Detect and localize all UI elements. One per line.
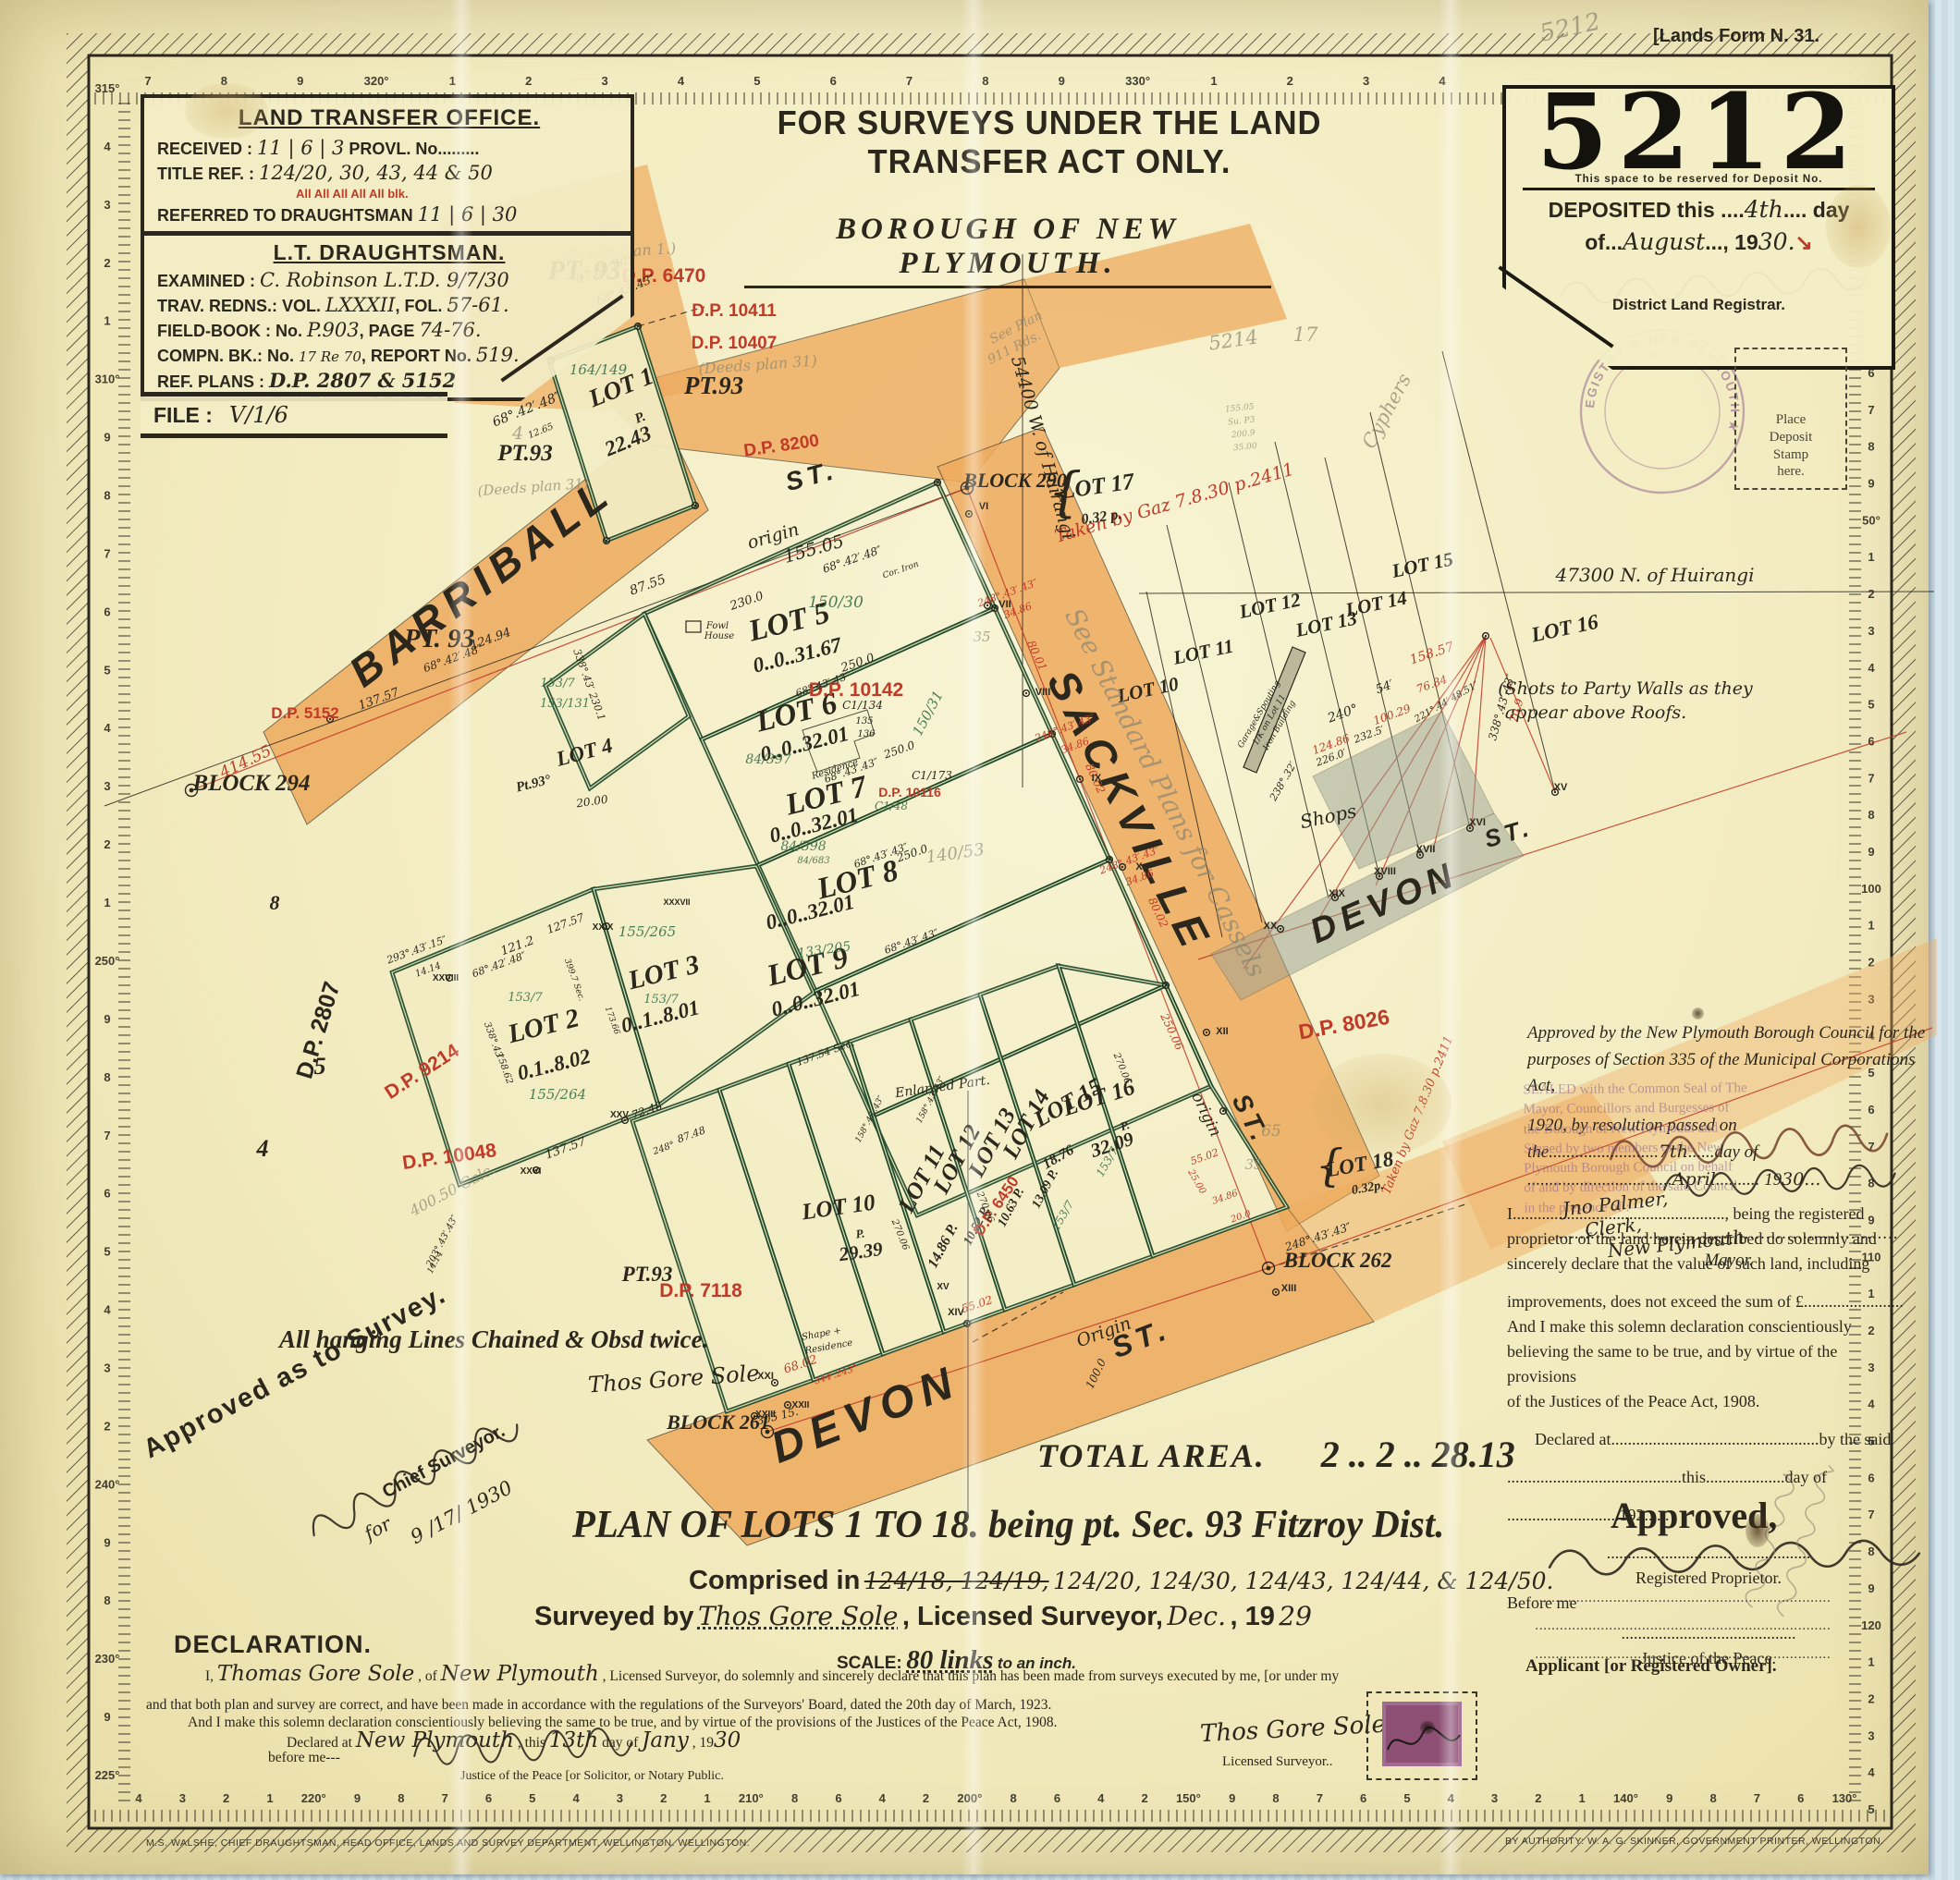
map-label: LOT 14 xyxy=(1342,586,1409,621)
map-label: (Shots to Party Walls as they xyxy=(1498,678,1753,699)
ruler-number: 8 xyxy=(104,1070,110,1084)
map-label: XXIX xyxy=(593,922,614,933)
map-label: 150/31 xyxy=(909,688,947,739)
map-label: D.P. 7118 xyxy=(659,1280,742,1301)
map-label: 68°.43′.43″ xyxy=(883,926,941,956)
ruler-number: 9 xyxy=(104,1535,110,1549)
ruler-number: 7 xyxy=(1317,1791,1323,1805)
ruler-number: 6 xyxy=(104,1187,110,1201)
ruler-number: 2 xyxy=(1535,1791,1541,1805)
ruler-number: 7 xyxy=(104,1129,110,1142)
map-label: 55.02 xyxy=(960,1293,994,1315)
lto-examined: EXAMINED : C. Robinson L.T.D. 9/7/30 xyxy=(157,269,621,291)
map-label: 17 xyxy=(1293,324,1318,346)
map-label: P. xyxy=(855,1226,866,1240)
fowl-house-icon xyxy=(686,621,701,632)
ruler-number: 130° xyxy=(1832,1791,1857,1805)
ruler-number: 4 xyxy=(572,1791,580,1805)
map-label: XII xyxy=(1216,1026,1228,1037)
ruler-number: 8 xyxy=(791,1791,798,1805)
map-label: LOT 3 xyxy=(624,949,703,995)
map-label: 135 xyxy=(855,716,873,726)
map-label: VIII xyxy=(1035,687,1051,698)
map-label: LOT 4 xyxy=(553,734,615,771)
map-label: C1/134 xyxy=(842,699,883,712)
ruler-number: 4 xyxy=(104,140,111,153)
ruler-number: 9 xyxy=(1059,74,1065,88)
ruler-number: 5 xyxy=(1868,1802,1874,1816)
map-label: 250.0 xyxy=(881,739,916,762)
survey-station-dot xyxy=(1280,928,1281,930)
lands-form-number: [Lands Form N. 31. xyxy=(1653,26,1819,47)
map-label: C1/173 xyxy=(912,769,952,782)
lto-title-ref-marks: All All All All All blk. xyxy=(296,187,621,201)
lto-referred: REFERRED TO DRAUGHTSMAN 11 | 6 | 30 xyxy=(157,203,621,226)
map-label: 200.9 xyxy=(1230,429,1256,441)
ruler-number: 3 xyxy=(104,198,110,212)
map-label: 136 xyxy=(857,729,876,739)
map-label: 155/265 xyxy=(619,923,676,940)
map-label: 153/131 xyxy=(540,697,590,711)
ruler-number: 4 xyxy=(104,721,111,735)
map-label: LOT 10 xyxy=(800,1190,877,1226)
map-label: 5 xyxy=(314,1053,326,1080)
map-label: 55.02 xyxy=(1189,1146,1220,1167)
lto-draughtsman-title: L.T. DRAUGHTSMAN. xyxy=(157,240,621,265)
licensed-surveyor-caption: Licensed Surveyor.. xyxy=(1222,1754,1333,1770)
map-label: 4 xyxy=(511,423,523,444)
map-label: LOT 15 xyxy=(1389,547,1455,582)
ruler-number: 3 xyxy=(1868,1728,1874,1742)
ruler-number: 7 xyxy=(144,74,151,88)
ruler-number: 2 xyxy=(525,74,532,88)
map-label: X xyxy=(1135,861,1143,873)
map-label: 84/397 xyxy=(745,752,790,767)
survey-station-dot xyxy=(774,1382,776,1384)
jp-solicitor-caption: Justice of the Peace [or Solicitor, or N… xyxy=(460,1769,724,1784)
surveyed-by-row: Surveyed by Thos Gore Sole , Licensed Su… xyxy=(534,1601,1312,1632)
ruler-number: 5 xyxy=(1868,698,1874,712)
map-label: 127.57 xyxy=(545,910,587,936)
ruler-number: 210° xyxy=(739,1791,764,1805)
map-label: PT.93 xyxy=(496,441,553,466)
map-label: LOT 16 xyxy=(1528,610,1601,647)
ruler-number: 200° xyxy=(957,1791,982,1805)
map-label: XIX xyxy=(1329,888,1345,899)
map-label: 35 xyxy=(973,629,990,645)
place-deposit-stamp-box: PlaceDeposit Stamphere. xyxy=(1734,348,1847,490)
ruler-number: 9 xyxy=(104,431,110,445)
ruler-number: 4 xyxy=(104,1303,111,1317)
map-label: 150/30 xyxy=(808,593,864,612)
ruler-number: 1 xyxy=(1579,1791,1586,1805)
map-label: XXIII xyxy=(755,1410,776,1420)
map-label: 158.57 xyxy=(1408,640,1456,667)
before-me-line: before me--- xyxy=(268,1750,340,1766)
lto-title-ref: TITLE REF. : 124/20, 30, 43, 44 & 50 xyxy=(157,162,621,184)
map-label: 338°.43′ 230.1 xyxy=(570,647,607,722)
map-label: 76.84 xyxy=(1415,673,1449,696)
ruler-number: 7 xyxy=(1868,403,1874,417)
ruler-number: 9 xyxy=(104,1012,110,1026)
map-label: XVIII xyxy=(1374,866,1396,877)
map-label: 155.05 xyxy=(1225,402,1256,414)
lot-boundary-inner xyxy=(815,860,1166,1117)
ruler-number: 9 xyxy=(1229,1791,1235,1805)
map-label: 87.48 xyxy=(676,1124,707,1145)
ruler-number: 8 xyxy=(1272,1791,1279,1805)
lto-fieldbook: FIELD-BOOK : No. P.903, PAGE 74-76. xyxy=(157,319,621,341)
ruler-number: 4 xyxy=(1439,74,1446,88)
survey-station-dot xyxy=(966,1323,968,1325)
map-label: 230.0 xyxy=(728,590,766,615)
survey-station-dot xyxy=(694,505,696,507)
ruler-number: 4 xyxy=(1448,1791,1455,1805)
map-label: 158.62 xyxy=(494,1052,514,1086)
ruler-ticks-bottom xyxy=(89,1810,1892,1822)
land-transfer-office-box: LAND TRANSFER OFFICE. RECEIVED : 11 | 6 … xyxy=(141,94,634,401)
deposit-number: 5212 xyxy=(1506,81,1892,185)
survey-station-dot xyxy=(1165,984,1167,986)
ruler-number: 2 xyxy=(1868,587,1874,601)
file-strip: FILE :V/1/6 xyxy=(141,392,447,438)
ruler-number: 8 xyxy=(1709,1791,1716,1805)
ruler-number: 9 xyxy=(104,1710,110,1724)
map-label: 12.65 xyxy=(527,421,556,441)
survey-station-dot xyxy=(1485,635,1487,637)
form-heading: FOR SURVEYS UNDER THE LAND TRANSFER ACT … xyxy=(694,104,1404,181)
map-label: BLOCK 261 xyxy=(666,1410,770,1434)
declaration-line-2: and that both plan and survey are correc… xyxy=(146,1697,1051,1714)
map-label: 164/149 xyxy=(570,361,628,378)
ruler-number: 315° xyxy=(95,81,120,95)
map-label: 137.57 xyxy=(544,1135,589,1163)
map-label: House xyxy=(704,631,734,641)
printer-credit-left: M.S. WALSHE, CHIEF DRAUGHTSMAN, HEAD OFF… xyxy=(146,1837,750,1849)
page: { "colors":{"ink":"#2b271d","red":"#c03a… xyxy=(0,0,1960,1880)
ruler-number: 150° xyxy=(1176,1791,1201,1805)
ruler-number: 3 xyxy=(104,779,110,793)
ruler-number: 3 xyxy=(1868,624,1874,638)
ruler-number: 4 xyxy=(879,1791,887,1805)
survey-station-dot xyxy=(1275,1291,1277,1293)
declaration-line-1: I, Thomas Gore Sole , of New Plymouth , … xyxy=(205,1662,1339,1686)
declaration-line-4: Declared at New Plymouth , this 13th day… xyxy=(287,1728,741,1752)
ruler-number: 1 xyxy=(266,1791,273,1805)
map-label: 140/53 xyxy=(925,840,986,868)
map-label: C1/48 xyxy=(875,800,908,812)
ruler-number: 1 xyxy=(1868,550,1874,564)
ruler-number: 3 xyxy=(1363,74,1369,88)
survey-station-dot xyxy=(1267,1266,1271,1271)
ruler-number: 100 xyxy=(1861,882,1881,896)
map-label: Taken by Gaz 7.8.30 p.2411 xyxy=(1052,459,1296,547)
ruler-number: 5 xyxy=(104,663,110,677)
map-label: 47300 N. of Huirangi xyxy=(1555,564,1755,586)
ruler-number: 3 xyxy=(1491,1791,1498,1805)
map-label: Cor. Iron xyxy=(882,560,921,581)
ruler-number: 140° xyxy=(1613,1791,1638,1805)
applicant-caption: Applicant [or Registered Owner]. xyxy=(1525,1656,1777,1677)
map-label: Cyphers xyxy=(1358,370,1416,452)
ruler-number: 6 xyxy=(1054,1791,1060,1805)
ruler-number: 2 xyxy=(923,1791,929,1805)
map-label: BLOCK 262 xyxy=(1283,1249,1392,1272)
survey-station-dot xyxy=(606,540,607,542)
ruler-number: 4 xyxy=(135,1791,142,1805)
revenue-stamp-box xyxy=(1366,1691,1477,1780)
ruler-number: 3 xyxy=(602,74,608,88)
survey-line xyxy=(1139,592,1934,593)
deposit-box: 5212 This space to be reserved for Depos… xyxy=(1502,85,1895,370)
lto-divider xyxy=(144,231,631,236)
revenue-stamp xyxy=(1382,1702,1462,1766)
map-label: XVII xyxy=(1416,844,1436,855)
map-label: 72.48 xyxy=(630,1099,664,1122)
ruler-number: 2 xyxy=(1141,1791,1147,1805)
ruler-number: 8 xyxy=(1868,440,1874,454)
ruler-number: 9 xyxy=(1868,845,1874,859)
map-label: 65 xyxy=(1261,1122,1281,1141)
ruler-number: 9 xyxy=(354,1791,361,1805)
approved-caption: Approved, xyxy=(1611,1494,1777,1537)
map-label: 35 xyxy=(1244,1156,1262,1173)
survey-station-dot xyxy=(1222,1110,1224,1112)
ruler-number: 6 xyxy=(485,1791,492,1805)
map-label: VII xyxy=(998,599,1011,610)
map-label: 399.7 Sec. xyxy=(562,958,586,1003)
map-label: 238°.32′ xyxy=(1267,759,1299,803)
map-label: VI xyxy=(979,501,988,512)
ruler-number: 1 xyxy=(1210,74,1217,88)
round-stamp-inner xyxy=(1605,354,1720,469)
map-label: 0.1..8.02 xyxy=(515,1044,593,1085)
ruler-number: 2 xyxy=(104,1419,110,1433)
map-label: XXII xyxy=(792,1400,810,1410)
ruler-number: 5 xyxy=(529,1791,535,1805)
map-label: 203°.43′.43″ xyxy=(424,1214,460,1270)
borough-heading: BOROUGH OF NEW PLYMOUTH. xyxy=(744,213,1271,288)
map-label: 13.09 P. xyxy=(1030,1167,1061,1211)
map-label: Su. P3 xyxy=(1228,415,1256,427)
ruler-number: 3 xyxy=(617,1791,623,1805)
ruler-number: 8 xyxy=(104,1593,110,1607)
map-label: D.P. 10407 xyxy=(692,334,778,353)
map-label: 153/7 xyxy=(643,993,679,1007)
map-label: 34.86 xyxy=(1211,1188,1240,1206)
survey-station-dot xyxy=(1025,692,1027,694)
ruler-number: 1 xyxy=(104,896,110,909)
ruler-number: 9 xyxy=(1666,1791,1672,1805)
ruler-number: 4 xyxy=(678,74,685,88)
map-label: 29.39 xyxy=(837,1238,885,1266)
ruler-number: 225° xyxy=(95,1768,120,1782)
ruler-number: 5 xyxy=(753,74,760,88)
map-label: 4 xyxy=(256,1135,269,1162)
ruler-number: 7 xyxy=(1754,1791,1760,1805)
map-label: D.P. 10411 xyxy=(692,301,777,321)
ruler-number: 50° xyxy=(1862,513,1880,527)
map-label: 248° xyxy=(651,1140,676,1157)
map-label: 0..0..32.01 xyxy=(764,890,857,934)
ruler-number: 2 xyxy=(223,1791,229,1805)
map-label: 68°.42′.48″ xyxy=(471,949,529,980)
ruler-number: 310° xyxy=(95,372,120,386)
map-label: D.P. 5152 xyxy=(271,704,338,722)
ruler-number: 3 xyxy=(104,1361,110,1374)
ruler-number: 8 xyxy=(982,74,988,88)
map-label: 155/264 xyxy=(529,1086,586,1103)
survey-station-dot xyxy=(968,513,970,515)
printer-credit-right: BY AUTHORITY: W. A. G. SKINNER, GOVERNME… xyxy=(1505,1836,1884,1847)
deposited-line: DEPOSITED this ....4th.... day xyxy=(1506,196,1892,223)
map-label: IX xyxy=(1092,773,1102,784)
map-label: 84/683 xyxy=(797,856,829,866)
map-label: 35.00 xyxy=(1232,442,1257,454)
ruler-number: 330° xyxy=(1125,74,1150,88)
comprised-row: Comprised in 124/18, 124/19, 124/20, 124… xyxy=(689,1566,1553,1596)
ruler-number: 240° xyxy=(95,1477,120,1491)
ruler-number: 4 xyxy=(1868,1765,1875,1779)
ruler-number: 1 xyxy=(1868,919,1874,933)
map-label: 14.86 P. xyxy=(925,1221,961,1271)
survey-station-dot xyxy=(994,607,996,609)
map-label: 87.55 xyxy=(628,572,668,599)
border-hatch xyxy=(67,33,89,1852)
ruler-number: 1 xyxy=(104,314,110,328)
ruler-number: 2 xyxy=(1868,1691,1874,1705)
map-label: LOT 2 xyxy=(504,1003,582,1049)
plan-title: PLAN OF LOTS 1 TO 18. being pt. Sec. 93 … xyxy=(572,1503,1406,1547)
map-label: XIV xyxy=(948,1307,964,1318)
ruler-number: 8 xyxy=(1868,808,1874,822)
ruler-number: 9 xyxy=(297,74,303,88)
ruler-number: 5 xyxy=(1403,1791,1410,1805)
map-label: { xyxy=(1316,1140,1344,1191)
map-label: Pt.93° xyxy=(515,773,553,796)
ruler-ticks-left xyxy=(118,96,130,1804)
ruler-number: 6 xyxy=(835,1791,841,1805)
declaration-title: DECLARATION. xyxy=(174,1630,372,1659)
map-label: appear above Roofs. xyxy=(1505,702,1686,723)
total-area-row: TOTAL AREA.2 .. 2 .. 28.13 xyxy=(1037,1433,1515,1476)
ruler-number: 8 xyxy=(1011,1791,1017,1805)
ruler-number: 8 xyxy=(104,489,110,503)
survey-station-dot xyxy=(937,482,938,483)
lot-boundary xyxy=(815,860,1166,1117)
deposited-date-line: of...August..., 1930.↘ xyxy=(1506,228,1892,255)
map-label: XXVI xyxy=(521,1166,542,1177)
ruler-number: 1 xyxy=(704,1791,710,1805)
ruler-number: 220° xyxy=(301,1791,326,1805)
ruler-number: 8 xyxy=(398,1791,404,1805)
ruler-number: 2 xyxy=(104,837,110,851)
ruler-number: 9 xyxy=(1868,477,1874,491)
map-label: XV xyxy=(937,1282,949,1292)
survey-station-dot xyxy=(787,1404,789,1406)
map-label: XXVIII xyxy=(433,973,459,983)
map-label: 20.00 xyxy=(574,793,608,811)
ruler-number: 7 xyxy=(1868,771,1874,785)
map-label: 173.66 xyxy=(603,1006,621,1036)
map-label: XXV xyxy=(610,1110,629,1120)
ruler-number: 7 xyxy=(906,74,913,88)
ruler-number: 6 xyxy=(1360,1791,1366,1805)
ruler-number: 1 xyxy=(449,74,456,88)
ruler-number: 2 xyxy=(1287,74,1293,88)
ruler-number: 4 xyxy=(1868,661,1875,675)
lto-received: RECEIVED : 11 | 6 | 3 PROVL. No......... xyxy=(157,137,621,159)
map-label: XIII xyxy=(1281,1283,1297,1294)
map-label: LOT 11 xyxy=(1170,635,1235,669)
survey-station-dot xyxy=(637,325,639,327)
lto-title: LAND TRANSFER OFFICE. xyxy=(157,105,621,131)
map-label: D.P. 9214 xyxy=(381,1040,463,1104)
ruler-number: 8 xyxy=(221,74,227,88)
ruler-number: 250° xyxy=(95,954,120,968)
lto-trav: TRAV. REDNS.: VOL. LXXXII, FOL. 57-61. xyxy=(157,294,621,316)
ruler-number: 230° xyxy=(95,1652,120,1666)
ruler-number: 6 xyxy=(830,74,837,88)
map-label: XX xyxy=(1264,921,1278,932)
ruler-number: 2 xyxy=(104,256,110,270)
map-label: 8 xyxy=(270,891,280,914)
survey-station-dot xyxy=(1206,1032,1207,1033)
map-label: 54′ xyxy=(1374,678,1395,697)
map-label: 100.29 xyxy=(1372,702,1414,727)
map-label: 84/398 xyxy=(780,839,826,854)
map-label: 153/7 xyxy=(540,677,575,690)
ruler-number: 6 xyxy=(104,604,110,618)
map-label: 25.00 xyxy=(1185,1167,1208,1197)
revenue-stamp-signature xyxy=(1380,1718,1473,1764)
ruler-number: 6 xyxy=(1868,734,1874,748)
survey-station-dot xyxy=(1079,778,1081,780)
ruler-number: 3 xyxy=(179,1791,186,1805)
map-label: 153/7 xyxy=(508,991,543,1005)
ruler-number: 7 xyxy=(442,1791,448,1805)
map-label: XVI xyxy=(1469,817,1486,828)
ruler-number: 5 xyxy=(104,1245,110,1259)
map-label: D.P. 8026 xyxy=(1296,1005,1390,1044)
map-label: 18.76 xyxy=(1040,1142,1077,1173)
ruler-number: 6 xyxy=(1797,1791,1804,1805)
ruler-number: 2 xyxy=(660,1791,667,1805)
map-label: Fowl xyxy=(705,621,729,631)
ruler-number: 4 xyxy=(1097,1791,1105,1805)
map-label: D.P. 10116 xyxy=(878,785,941,800)
border-hatch xyxy=(89,33,1892,55)
ruler-number: 7 xyxy=(104,546,110,560)
ruler-number: 320° xyxy=(364,74,389,88)
map-label: BLOCK 294 xyxy=(191,771,310,796)
map-label: XXXVII xyxy=(663,897,690,907)
map-label: XV xyxy=(1554,782,1568,793)
